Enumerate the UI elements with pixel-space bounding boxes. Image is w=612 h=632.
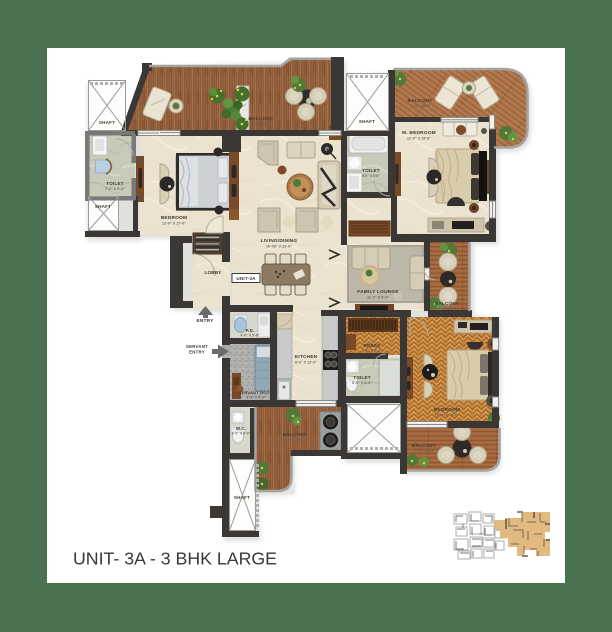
svg-text:BEDROOM: BEDROOM bbox=[434, 407, 460, 413]
svg-text:12'-0" X 15'-6": 12'-0" X 15'-6" bbox=[407, 137, 431, 141]
svg-text:11'-2" X 9'-0": 11'-2" X 9'-0" bbox=[367, 296, 389, 300]
svg-text:BALCONY: BALCONY bbox=[412, 443, 436, 448]
svg-text:9'-10" WIDE: 9'-10" WIDE bbox=[251, 122, 272, 126]
svg-text:TOILET: TOILET bbox=[353, 375, 370, 380]
svg-text:4'-0" X 5'-6": 4'-0" X 5'-6" bbox=[241, 334, 260, 338]
svg-text:SERVANT: SERVANT bbox=[186, 344, 208, 349]
svg-text:BALCONY: BALCONY bbox=[435, 301, 459, 306]
svg-text:SHAFT: SHAFT bbox=[95, 204, 111, 209]
svg-text:ENTRY: ENTRY bbox=[196, 318, 214, 324]
svg-text:5'-0" WIDE: 5'-0" WIDE bbox=[438, 307, 457, 311]
svg-text:9'-10" WIDE: 9'-10" WIDE bbox=[410, 104, 431, 108]
svg-text:6'0" X 8'6": 6'0" X 8'6" bbox=[362, 174, 380, 178]
svg-text:7'-0" X 9'-0": 7'-0" X 9'-0" bbox=[105, 187, 125, 191]
svg-text:M. BEDROOM: M. BEDROOM bbox=[402, 130, 436, 136]
svg-text:TOILET: TOILET bbox=[106, 181, 123, 186]
svg-text:3'-2" X 5'-6": 3'-2" X 5'-6" bbox=[232, 432, 251, 436]
svg-text:DRESS: DRESS bbox=[364, 343, 381, 348]
svg-text:7'-6" X 5'-0": 7'-6" X 5'-0" bbox=[362, 349, 382, 353]
svg-text:SHAFT: SHAFT bbox=[234, 495, 250, 500]
svg-text:P.D.: P.D. bbox=[246, 328, 255, 333]
svg-text:6'-5" X 8'-2": 6'-5" X 8'-2" bbox=[247, 396, 266, 400]
svg-text:16'-06" X 23'-0": 16'-06" X 23'-0" bbox=[266, 245, 292, 249]
svg-text:SHAFT: SHAFT bbox=[359, 119, 375, 124]
svg-text:5'-0" X 8'-0": 5'-0" X 8'-0" bbox=[352, 381, 372, 385]
svg-text:ENTRY: ENTRY bbox=[189, 350, 205, 355]
svg-text:5'-10" WIDE: 5'-10" WIDE bbox=[414, 449, 435, 453]
svg-text:W.C.: W.C. bbox=[236, 426, 246, 431]
svg-text:12'-0" X 14'-0": 12'-0" X 14'-0" bbox=[435, 414, 459, 418]
svg-text:UNIT-3A: UNIT-3A bbox=[236, 276, 256, 281]
svg-text:8'-0" X 12'-0": 8'-0" X 12'-0" bbox=[295, 361, 317, 365]
svg-text:KITCHEN: KITCHEN bbox=[295, 354, 318, 360]
svg-text:SHAFT: SHAFT bbox=[99, 120, 115, 125]
svg-text:BALCONY: BALCONY bbox=[283, 432, 307, 437]
svg-text:LOBBY: LOBBY bbox=[204, 270, 221, 275]
svg-text:UNIT- 3A - 3 BHK LARGE: UNIT- 3A - 3 BHK LARGE bbox=[73, 549, 277, 569]
svg-text:LIVING/DINING: LIVING/DINING bbox=[261, 238, 298, 244]
svg-text:12'-0" X 17'-0": 12'-0" X 17'-0" bbox=[162, 222, 186, 226]
svg-text:BEDROOM: BEDROOM bbox=[161, 215, 187, 221]
svg-text:5'-10" WIDE: 5'-10" WIDE bbox=[285, 438, 306, 442]
svg-text:TOILET: TOILET bbox=[362, 168, 379, 173]
svg-text:FAMILY LOUNGE: FAMILY LOUNGE bbox=[357, 289, 399, 295]
svg-text:SERVANT ROOM: SERVANT ROOM bbox=[239, 390, 274, 395]
